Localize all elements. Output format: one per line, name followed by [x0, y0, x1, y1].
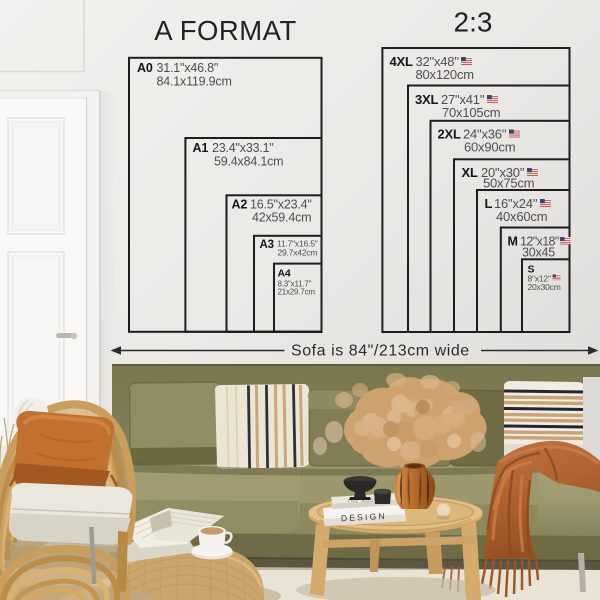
svg-text:16.5"x23.4": 16.5"x23.4" [250, 198, 312, 212]
svg-text:3XL: 3XL [415, 92, 439, 107]
svg-text:4XL: 4XL [390, 54, 414, 69]
svg-text:2:3: 2:3 [454, 7, 493, 38]
svg-text:30x45: 30x45 [522, 246, 555, 260]
svg-text:L: L [485, 196, 493, 211]
svg-text:50x75cm: 50x75cm [483, 176, 534, 191]
svg-text:XL: XL [462, 165, 478, 180]
svg-text:2XL: 2XL [438, 127, 462, 142]
svg-text:80x120cm: 80x120cm [416, 67, 474, 82]
svg-text:23.4"x33.1": 23.4"x33.1" [212, 141, 274, 155]
svg-text:20x30cm: 20x30cm [528, 282, 561, 292]
svg-text:Sofa is 84"/213cm wide: Sofa is 84"/213cm wide [291, 343, 470, 360]
svg-text:40x60cm: 40x60cm [496, 209, 547, 224]
svg-text:31.1"x46.8": 31.1"x46.8" [157, 61, 219, 75]
svg-text:A0: A0 [137, 61, 153, 75]
svg-text:42x59.4cm: 42x59.4cm [252, 211, 311, 225]
svg-text:70x105cm: 70x105cm [442, 105, 500, 120]
svg-text:29.7x42cm: 29.7x42cm [278, 248, 318, 258]
svg-text:A3: A3 [260, 239, 274, 251]
svg-text:M: M [508, 235, 518, 249]
svg-text:A1: A1 [193, 141, 209, 155]
svg-text:59.4x84.1cm: 59.4x84.1cm [214, 155, 283, 169]
svg-text:60x90cm: 60x90cm [464, 140, 515, 155]
svg-text:A2: A2 [232, 198, 248, 212]
svg-text:84.1x119.9cm: 84.1x119.9cm [157, 75, 232, 89]
svg-text:A FORMAT: A FORMAT [154, 15, 297, 46]
svg-text:A4: A4 [278, 268, 291, 280]
svg-text:21x29.7cm: 21x29.7cm [278, 288, 316, 297]
